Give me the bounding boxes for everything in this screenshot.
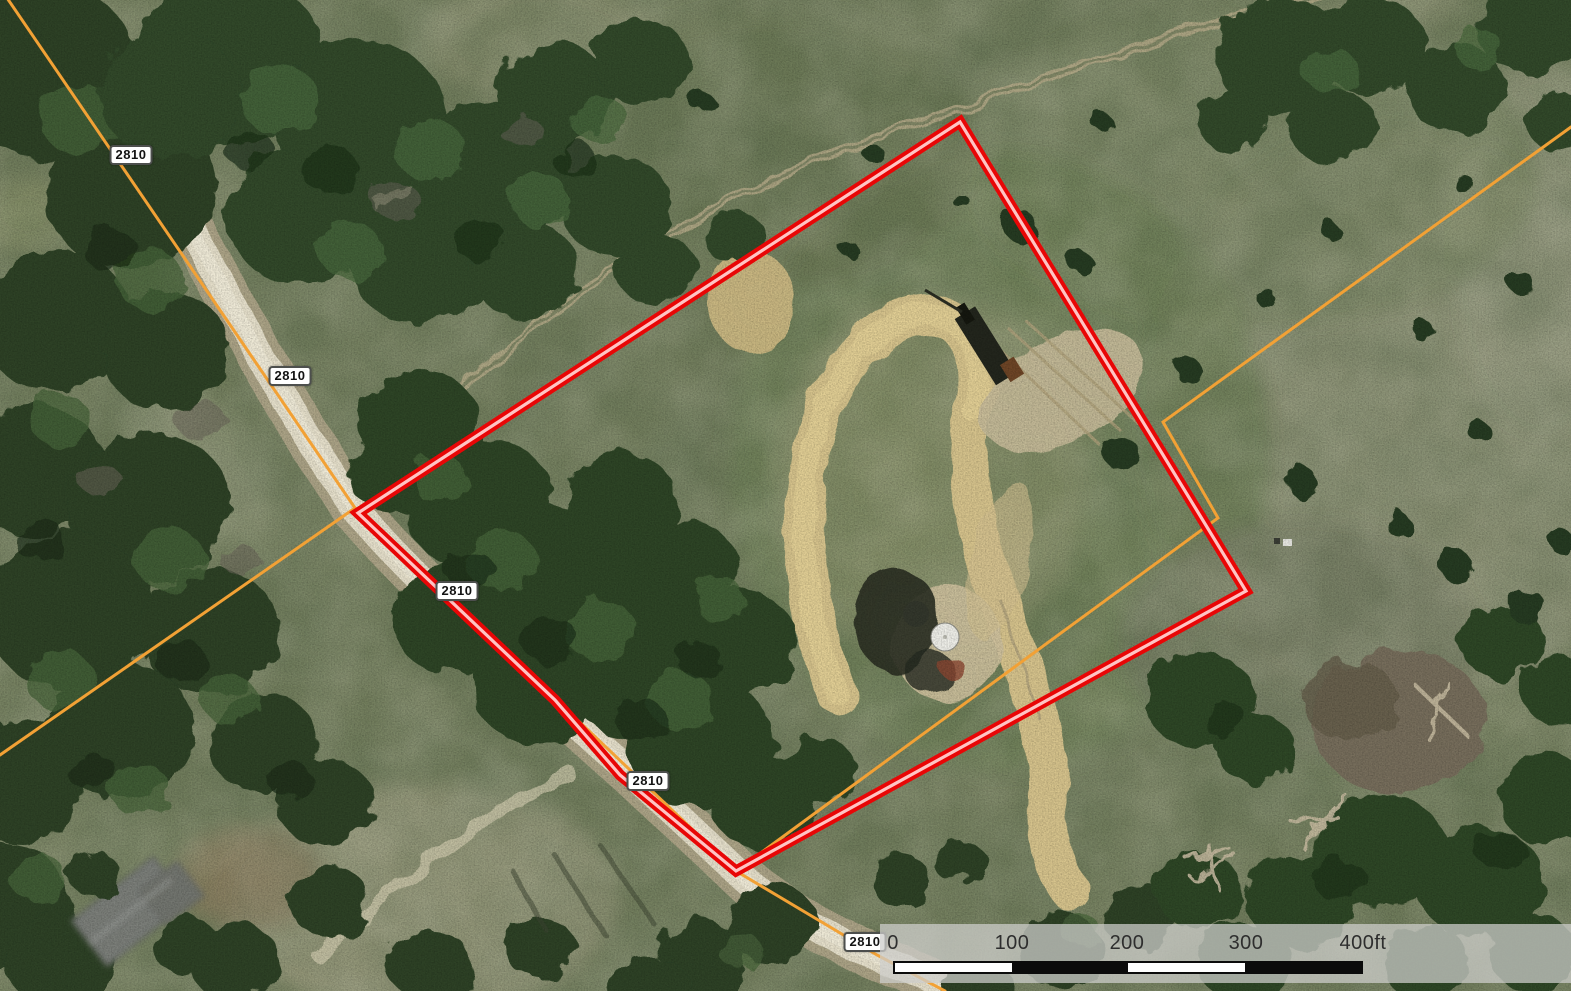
- scale-segment: [895, 963, 1012, 972]
- road-shield-2810: 2810: [269, 366, 312, 386]
- scale-tick-0: 0: [887, 932, 899, 955]
- road-shield-label: 2810: [633, 773, 664, 788]
- scale-tick-200: 200: [1110, 932, 1145, 955]
- road-shield-label: 2810: [850, 934, 881, 949]
- scale-bar-rule: [893, 961, 1363, 974]
- scale-segment: [1012, 963, 1129, 972]
- scale-bar: 0 100 200 300 400ft: [880, 924, 1571, 983]
- road-shield-2810: 2810: [110, 145, 153, 165]
- satellite-imagery: [0, 0, 1571, 991]
- road-shield-label: 2810: [442, 583, 473, 598]
- scale-segment: [1245, 963, 1362, 972]
- scale-segment: [1128, 963, 1245, 972]
- road-shield-label: 2810: [275, 368, 306, 383]
- road-shield-2810: 2810: [436, 581, 479, 601]
- scale-tick-400: 400ft: [1340, 932, 1387, 955]
- scale-tick-100: 100: [995, 932, 1030, 955]
- scale-tick-300: 300: [1229, 932, 1264, 955]
- aerial-map-canvas[interactable]: 2810 2810 2810 2810 2810 0 100 200 300 4…: [0, 0, 1571, 991]
- road-shield-2810: 2810: [627, 771, 670, 791]
- road-shield-label: 2810: [116, 147, 147, 162]
